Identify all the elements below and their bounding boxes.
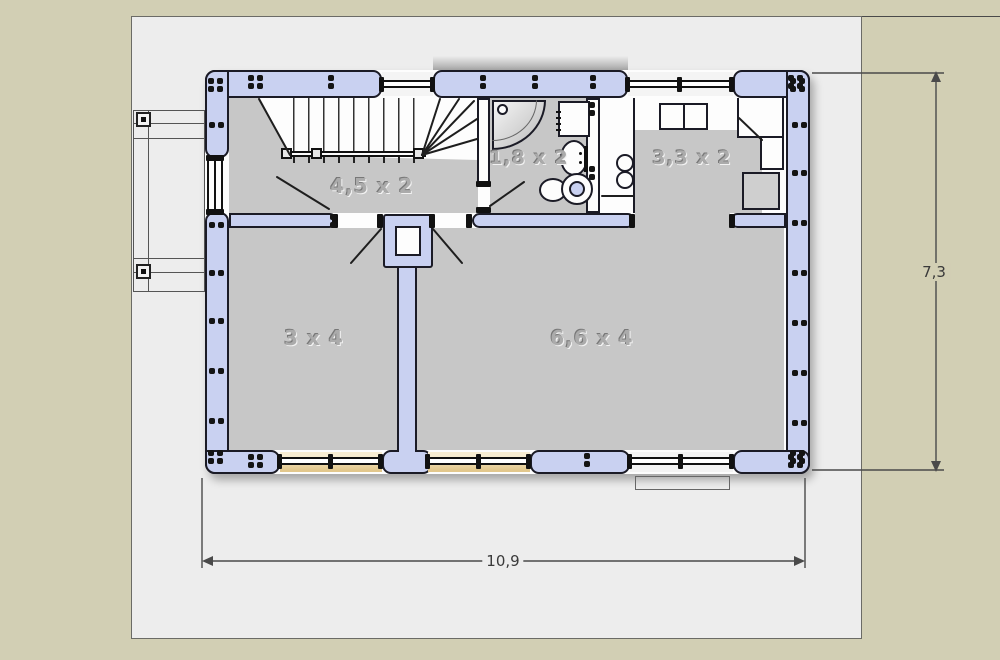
bath-kitchen-wall — [472, 213, 635, 228]
left-wall-lower — [205, 212, 229, 474]
stair-treads — [293, 98, 424, 155]
kitchen-sink — [616, 171, 634, 189]
kitchen-sink — [616, 154, 634, 172]
toilet-tank-inner — [569, 181, 585, 197]
side-cabinet — [760, 136, 784, 170]
railing — [286, 151, 426, 157]
bottom-wall-1 — [205, 450, 280, 474]
bathroom-partition — [477, 98, 490, 186]
porch-post — [136, 112, 151, 127]
shower-drain — [497, 104, 508, 115]
porch-post — [136, 264, 151, 279]
railing-post — [281, 148, 292, 159]
right-wall — [786, 70, 810, 474]
railing-post — [311, 148, 322, 159]
room-label-hall: 4,5 x 2 — [330, 174, 413, 198]
dimension-height-label: 7,3 — [918, 263, 950, 281]
partition-stem — [397, 252, 417, 452]
top-wall-left — [205, 70, 382, 98]
wall-shadow — [433, 56, 628, 70]
room-label-bathroom: 1,8 x 2 — [489, 147, 568, 169]
floor-plan-canvas: 4,5 x 2 1,8 x 2 3,3 x 2 3 x 4 6,6 x 4 10… — [0, 0, 1000, 660]
room-label-kitchen: 3,3 x 2 — [652, 147, 731, 169]
fridge — [742, 172, 780, 210]
dimension-width-label: 10,9 — [482, 552, 523, 570]
top-wall-mid — [433, 70, 628, 98]
counter-edge — [633, 98, 635, 213]
bottom-wall-3 — [733, 450, 810, 474]
washing-machine-hatch — [556, 107, 561, 131]
floor-kitchen-opening — [635, 213, 730, 228]
page-top-edge — [862, 16, 1000, 17]
entry-door — [207, 161, 223, 209]
railing-post — [413, 148, 424, 159]
bottom-wall-2 — [530, 450, 630, 474]
room-label-small-room: 3 x 4 — [284, 326, 344, 350]
corner-cabinet — [737, 98, 784, 138]
hall-wall — [229, 213, 337, 228]
entry-step — [635, 476, 730, 490]
kitchen-wall-right — [730, 213, 786, 228]
window-glazing — [382, 80, 433, 88]
washing-machine — [558, 101, 590, 137]
room-label-living-room: 6,6 x 4 — [550, 326, 633, 350]
chimney-flue — [395, 226, 421, 256]
sink-tap-bar — [584, 146, 588, 172]
